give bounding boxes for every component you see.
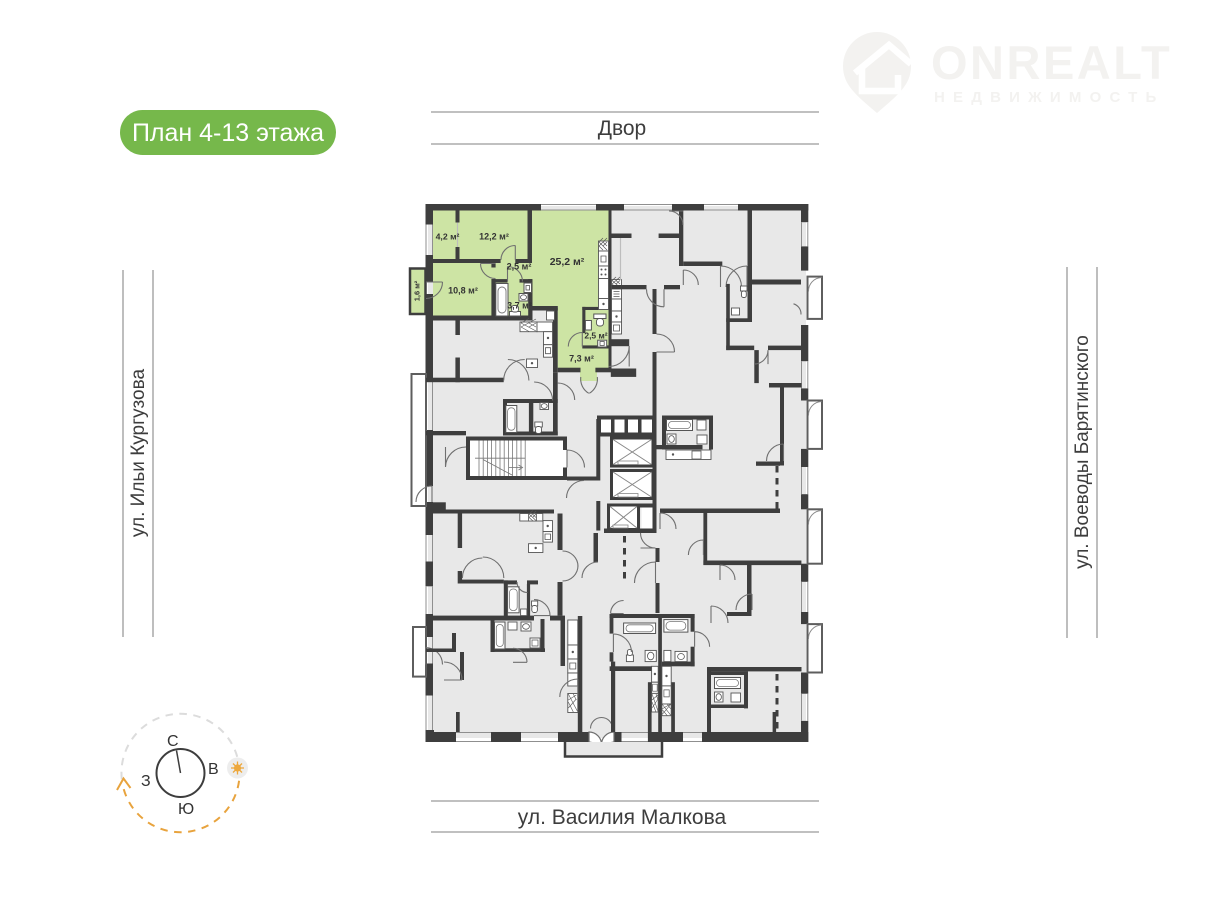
svg-text:12,2 м²: 12,2 м² [479, 232, 509, 242]
svg-text:НЕДВИЖИМОСТЬ: НЕДВИЖИМОСТЬ [934, 89, 1164, 106]
svg-text:ул. Воеводы Барятинского: ул. Воеводы Барятинского [1072, 335, 1093, 569]
svg-text:В: В [208, 761, 219, 778]
svg-text:3,7 м²: 3,7 м² [507, 301, 532, 311]
svg-text:25,2 м²: 25,2 м² [550, 256, 585, 268]
svg-text:2,5 м²: 2,5 м² [584, 331, 607, 341]
svg-text:2,5 м²: 2,5 м² [507, 262, 532, 272]
svg-text:7,3 м²: 7,3 м² [569, 354, 594, 364]
svg-text:План 4-13 этажа: План 4-13 этажа [132, 119, 324, 147]
svg-text:Двор: Двор [598, 117, 647, 140]
svg-text:ул. Василия Малкова: ул. Василия Малкова [518, 806, 727, 829]
svg-text:ул. Ильи Кургузова: ул. Ильи Кургузова [128, 369, 149, 538]
svg-text:1,6 м²: 1,6 м² [413, 280, 422, 301]
svg-text:Ю: Ю [178, 801, 194, 818]
svg-text:З: З [141, 773, 151, 790]
svg-text:10,8 м²: 10,8 м² [448, 286, 478, 296]
svg-text:С: С [167, 733, 179, 750]
svg-text:4,2 м²: 4,2 м² [436, 232, 460, 242]
svg-text:ONREALT: ONREALT [931, 36, 1172, 89]
